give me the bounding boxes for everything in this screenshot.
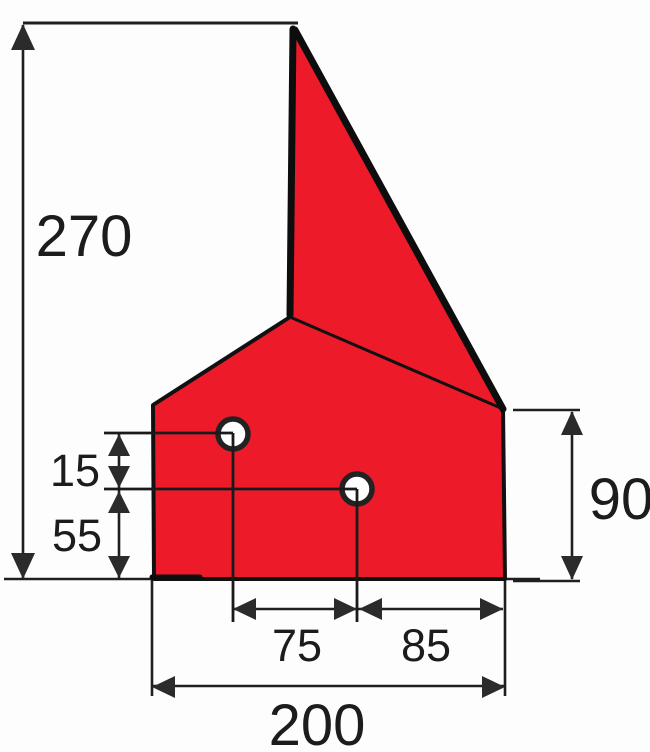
arrow-75-right: [334, 598, 357, 620]
arrow-270-down: [11, 553, 35, 579]
dim-label-hole-horizontal-spacing: 75: [272, 620, 322, 671]
arrow-200-right: [482, 676, 505, 698]
arrow-15-up: [108, 434, 130, 456]
arrow-90-up: [561, 411, 583, 435]
dim-label-right-side-height: 90: [589, 467, 650, 532]
dim-label-lower-hole-to-base: 55: [52, 510, 102, 561]
drawing-canvas: 270 15 55 90 75 85 200: [0, 0, 650, 752]
arrow-15-down: [108, 466, 130, 488]
dim-label-hole-vertical-spacing: 15: [50, 445, 100, 496]
part-outline: [153, 28, 505, 579]
arrow-90-down: [561, 556, 583, 580]
dim-label-hole-to-right-edge: 85: [401, 620, 451, 671]
arrow-55-up: [108, 491, 130, 513]
arrow-270-up: [11, 24, 35, 50]
dim-label-overall-height: 270: [36, 204, 133, 269]
technical-drawing: 270 15 55 90 75 85 200: [0, 0, 650, 752]
arrow-200-left: [152, 676, 175, 698]
arrow-85-left: [359, 598, 382, 620]
arrow-55-down: [108, 556, 130, 578]
arrow-75-left: [233, 598, 256, 620]
arrow-85-right: [480, 598, 503, 620]
dim-label-base-width: 200: [269, 693, 366, 752]
blade-left-edge: [290, 29, 293, 315]
